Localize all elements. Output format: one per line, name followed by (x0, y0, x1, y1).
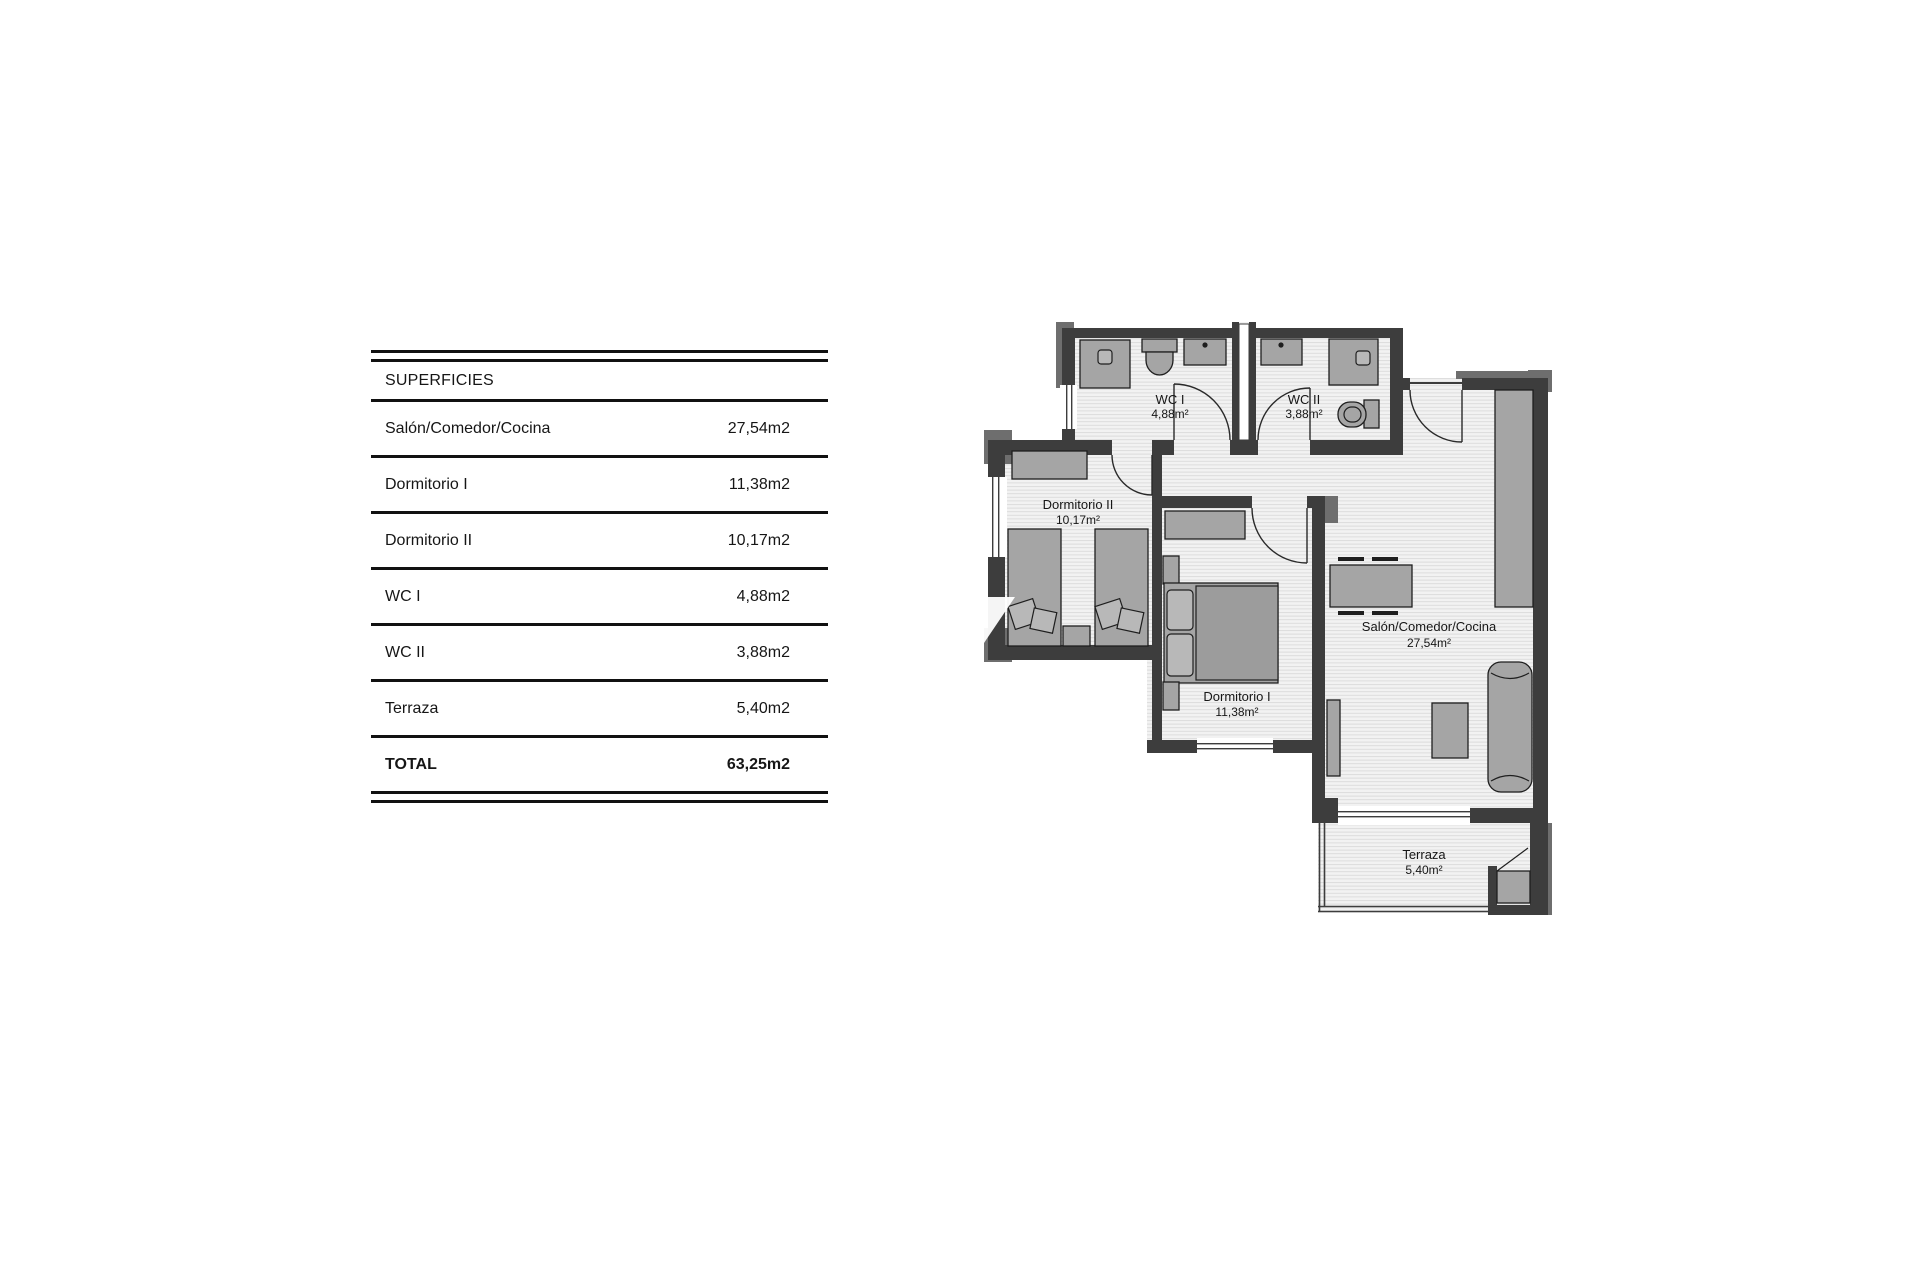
shower-icon (1329, 339, 1378, 385)
row-value: 10,17m2 (728, 532, 828, 550)
nightstand-icon (1163, 556, 1179, 584)
row-value: 27,54m2 (728, 420, 828, 438)
room-area-wc1: 4,88m² (1151, 407, 1188, 421)
row-salon-comedor-cocina: Salón/Comedor/Cocina 27,54m2 (371, 402, 828, 455)
row-total: TOTAL 63,25m2 (371, 738, 828, 791)
row-value: 11,38m2 (729, 476, 828, 494)
kitchen-counter-icon (1495, 390, 1533, 607)
dining-table-icon (1330, 565, 1412, 607)
total-label: TOTAL (371, 756, 437, 774)
pillow-icon (1167, 590, 1193, 630)
nightstand-icon (1063, 626, 1090, 646)
room-label-wc1: WC I (1156, 392, 1185, 407)
entry-threshold (1410, 382, 1462, 384)
row-label: Terraza (371, 700, 438, 718)
room-label-salon: Salón/Comedor/Cocina (1362, 619, 1497, 634)
toilet-cistern-icon (1142, 339, 1177, 352)
window-terrace-slider (1338, 806, 1470, 825)
coffee-table-icon (1432, 703, 1468, 758)
row-dormitorio-1: Dormitorio I 11,38m2 (371, 458, 828, 511)
surfaces-table: SUPERFICIES Salón/Comedor/Cocina 27,54m2… (371, 350, 828, 803)
tv-unit-icon (1327, 700, 1340, 776)
row-wc-2: WC II 3,88m2 (371, 626, 828, 679)
faucet-icon (1202, 342, 1207, 347)
window (986, 477, 1007, 557)
row-label: Dormitorio II (371, 532, 472, 550)
room-area-dorm2: 10,17m² (1056, 513, 1100, 527)
blanket-icon (1030, 608, 1057, 633)
pillow-icon (1167, 634, 1193, 676)
shower-drain-icon (1098, 350, 1112, 364)
shaft (1239, 324, 1249, 440)
floor-plan: WC I 4,88m² WC II 3,88m² Dormitorio II 1… (975, 315, 1555, 935)
floorplan-sheet: SUPERFICIES Salón/Comedor/Cocina 27,54m2… (0, 0, 1920, 1280)
row-label: Salón/Comedor/Cocina (371, 420, 550, 438)
row-wc-1: WC I 4,88m2 (371, 570, 828, 623)
room-label-terraza: Terraza (1402, 847, 1446, 862)
row-dormitorio-2: Dormitorio II 10,17m2 (371, 514, 828, 567)
room-area-dorm1: 11,38m² (1215, 705, 1258, 719)
mattress (1196, 586, 1278, 680)
room-label-dorm1: Dormitorio I (1203, 689, 1270, 704)
wardrobe-icon (1165, 511, 1245, 539)
table-title: SUPERFICIES (371, 362, 828, 399)
row-label: Dormitorio I (371, 476, 468, 494)
blanket-icon (1117, 608, 1144, 633)
wardrobe-icon (1012, 451, 1087, 479)
room-label-wc2: WC II (1288, 392, 1321, 407)
total-value: 63,25m2 (727, 756, 828, 774)
shower-drain-icon (1356, 351, 1370, 365)
storage-closet-icon (1497, 871, 1530, 903)
table-bottom-rule-2 (371, 800, 828, 803)
sofa-icon (1488, 662, 1532, 792)
toilet-icon (1338, 402, 1366, 427)
window (1060, 385, 1077, 429)
faucet-icon (1278, 342, 1283, 347)
row-value: 4,88m2 (737, 588, 828, 606)
room-area-salon: 27,54m² (1407, 636, 1451, 650)
window (1197, 738, 1273, 755)
row-label: WC I (371, 588, 421, 606)
row-value: 5,40m2 (737, 700, 828, 718)
row-value: 3,88m2 (737, 644, 828, 662)
row-terraza: Terraza 5,40m2 (371, 682, 828, 735)
row-label: WC II (371, 644, 425, 662)
toilet-icon (1146, 352, 1173, 375)
room-label-dorm2: Dormitorio II (1043, 497, 1114, 512)
room-area-terraza: 5,40m² (1405, 863, 1442, 877)
nightstand-icon (1163, 682, 1179, 710)
room-area-wc2: 3,88m² (1285, 407, 1322, 421)
